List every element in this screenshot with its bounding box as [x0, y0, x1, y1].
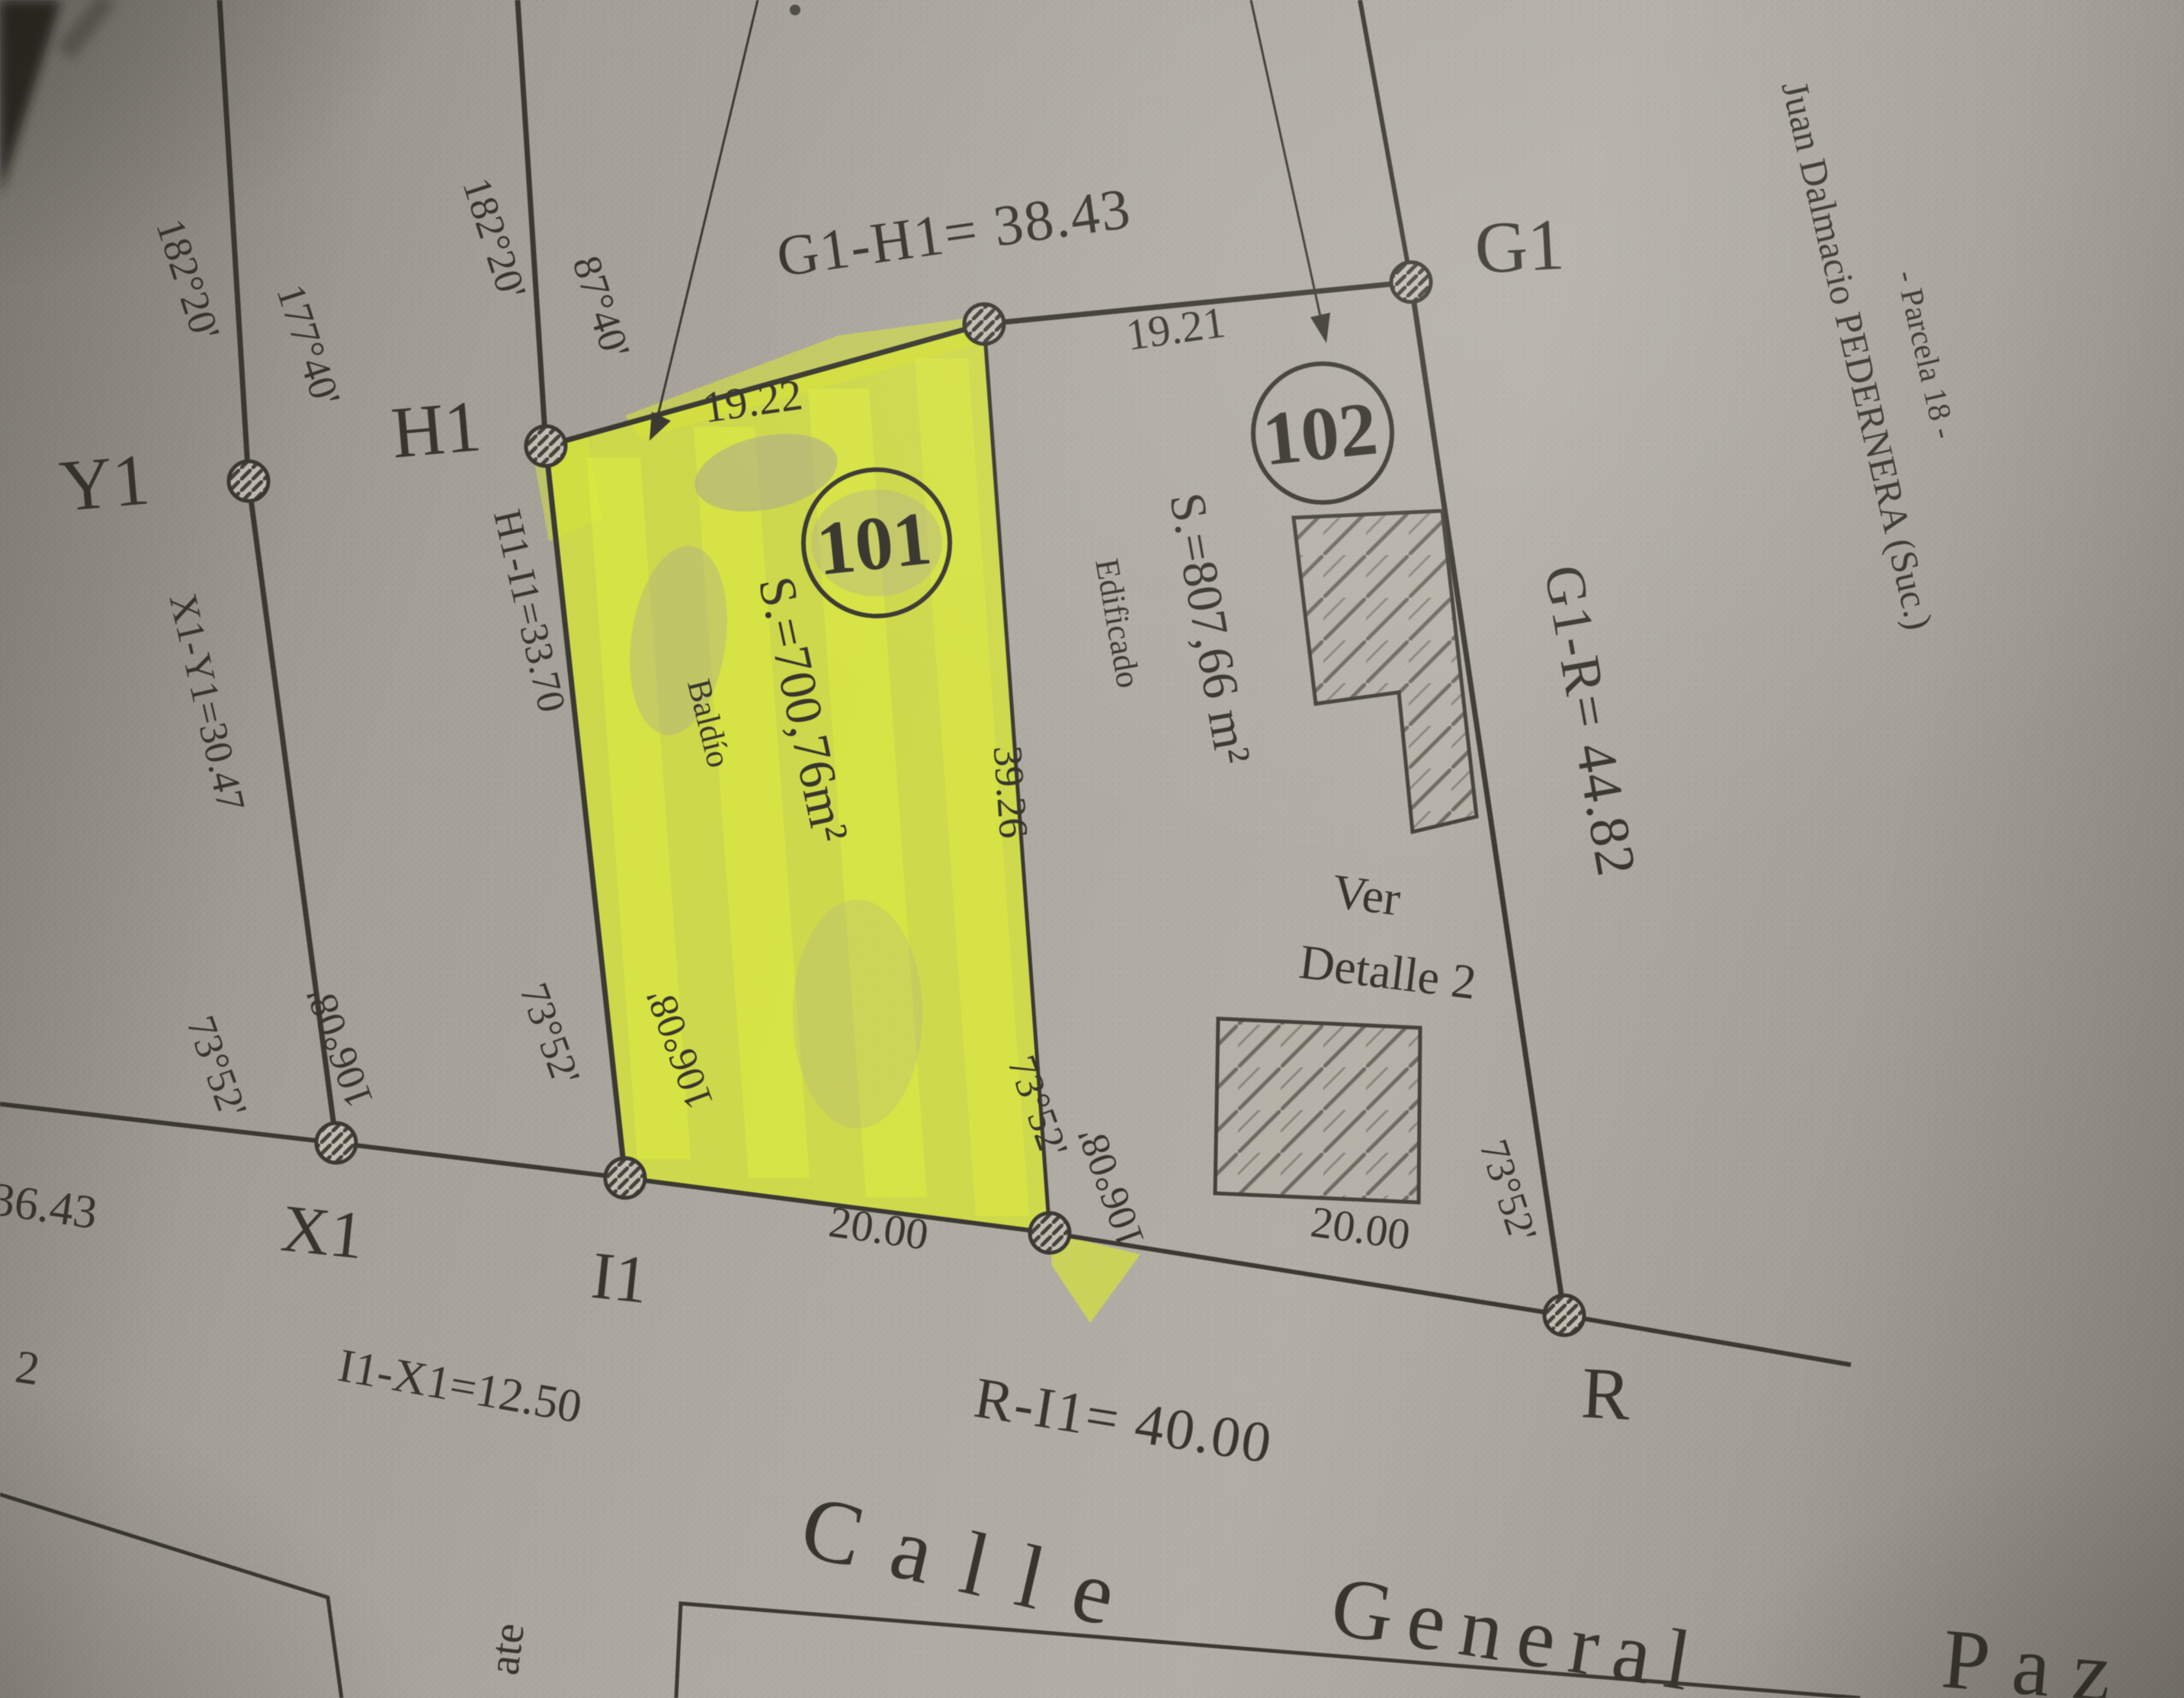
measure-39-26: 39.26 — [985, 744, 1037, 839]
paper-speck — [790, 5, 800, 15]
survey-marker-lot101-se — [1030, 1213, 1070, 1253]
point-label-g1: G1 — [1473, 203, 1567, 289]
note-bottom-partial: ate — [478, 1620, 534, 1677]
survey-marker-mid-g1h1 — [964, 304, 1004, 344]
note-ver: Ver — [1329, 864, 1403, 926]
survey-marker-y1 — [229, 461, 268, 501]
point-label-h1: H1 — [388, 384, 484, 473]
survey-plan-photo: 101 102 Y1 H1 G1 X1 I1 R G1-H1= 38.43 19… — [0, 0, 2184, 1698]
parcel-101-number: 101 — [813, 496, 935, 592]
point-label-i1: I1 — [588, 1239, 651, 1318]
parcel-102-number: 102 — [1259, 386, 1381, 482]
survey-marker-x1 — [316, 1123, 356, 1163]
survey-marker-h1 — [526, 426, 566, 466]
survey-marker-i1 — [605, 1158, 645, 1198]
survey-marker-r — [1544, 1295, 1584, 1335]
point-label-y1: Y1 — [56, 438, 152, 527]
point-label-x1: X1 — [277, 1192, 367, 1274]
point-label-r: R — [1579, 1351, 1633, 1435]
building-footprint-detail-2 — [1215, 1019, 1420, 1202]
survey-marker-g1 — [1391, 262, 1431, 302]
